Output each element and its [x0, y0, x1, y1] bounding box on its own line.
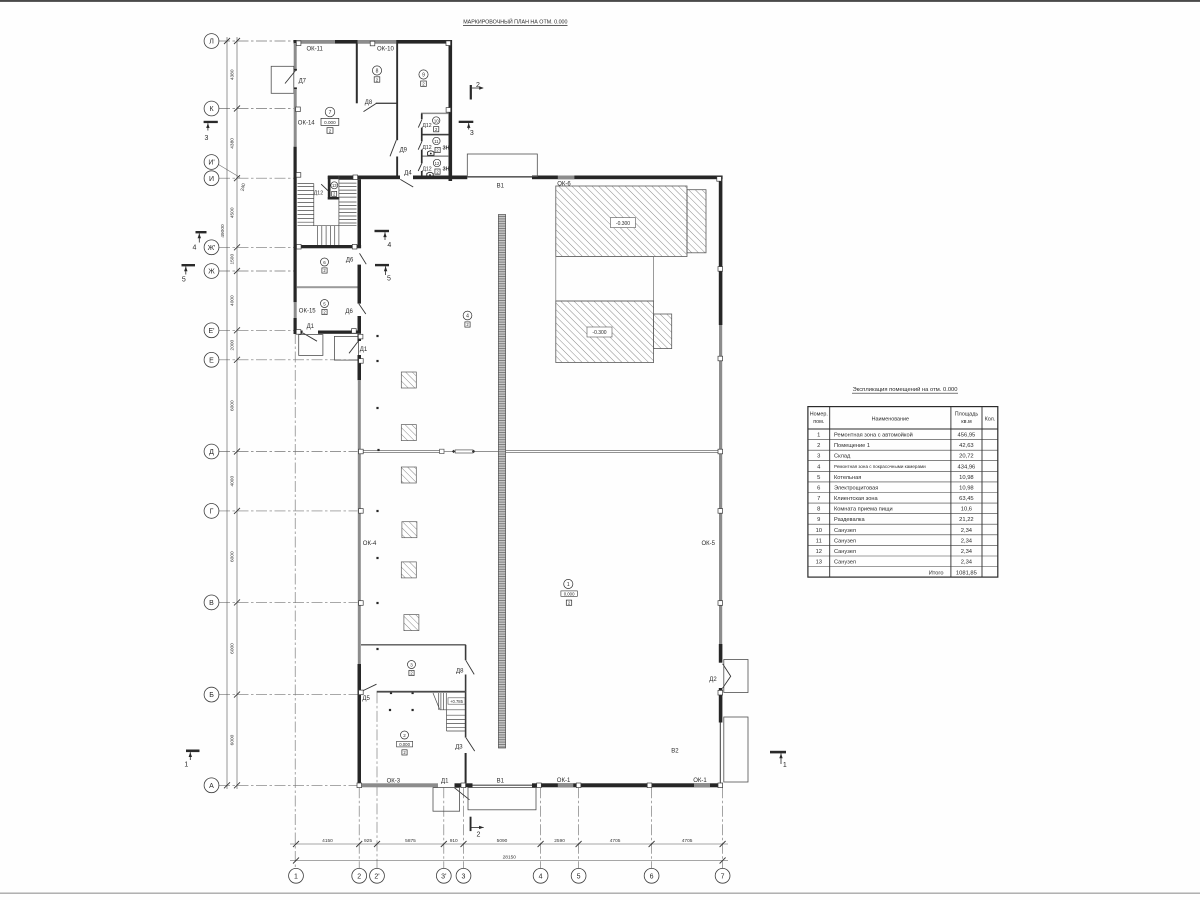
- svg-text:2': 2': [374, 873, 379, 880]
- svg-text:3': 3': [441, 873, 446, 880]
- svg-text:7: 7: [721, 873, 725, 880]
- svg-text:11: 11: [816, 538, 822, 544]
- svg-text:ОК-15: ОК-15: [299, 309, 316, 315]
- svg-text:20,72: 20,72: [959, 454, 974, 460]
- svg-text:6000: 6000: [230, 400, 236, 411]
- svg-text:4: 4: [387, 242, 391, 249]
- svg-text:6: 6: [650, 873, 654, 880]
- svg-text:Д1: Д1: [307, 324, 315, 330]
- svg-text:-0.300: -0.300: [616, 221, 630, 227]
- svg-text:Склад: Склад: [834, 454, 851, 460]
- svg-text:2: 2: [477, 832, 481, 839]
- svg-text:Б: Б: [209, 692, 214, 699]
- svg-text:В1: В1: [497, 184, 505, 190]
- svg-text:4000: 4000: [230, 295, 236, 306]
- svg-text:Санузел: Санузел: [834, 549, 856, 555]
- svg-text:2000: 2000: [230, 339, 236, 350]
- svg-text:6000: 6000: [230, 551, 236, 562]
- svg-text:Ремонтная зона с покрасочными: Ремонтная зона с покрасочными камерами: [834, 464, 926, 469]
- svg-text:910: 910: [450, 838, 458, 844]
- svg-text:2,34: 2,34: [961, 538, 973, 544]
- svg-text:Д1: Д1: [441, 779, 449, 785]
- svg-text:Площадь: Площадь: [955, 412, 979, 418]
- svg-text:Д6: Д6: [345, 309, 353, 315]
- svg-text:Д4: Д4: [404, 171, 412, 177]
- svg-text:Е': Е': [208, 328, 214, 335]
- svg-text:5875: 5875: [405, 838, 416, 844]
- svg-text:3: 3: [462, 873, 466, 880]
- svg-text:Кол.: Кол.: [985, 417, 996, 423]
- svg-text:1: 1: [783, 762, 787, 769]
- svg-text:1: 1: [567, 582, 570, 588]
- svg-text:ОК-5: ОК-5: [702, 541, 716, 547]
- svg-text:10,6: 10,6: [961, 507, 972, 513]
- svg-text:Санузел: Санузел: [834, 538, 856, 544]
- svg-text:4380: 4380: [230, 138, 236, 149]
- svg-text:Электрощитовая: Электрощитовая: [834, 486, 878, 492]
- svg-text:И': И': [208, 160, 214, 167]
- svg-text:5: 5: [577, 873, 581, 880]
- svg-text:Санузел: Санузел: [834, 560, 856, 566]
- svg-text:6000: 6000: [230, 643, 236, 654]
- svg-text:В2: В2: [671, 749, 679, 755]
- svg-text:13: 13: [332, 183, 337, 188]
- svg-text:В1: В1: [497, 779, 505, 785]
- svg-text:10: 10: [816, 528, 822, 534]
- svg-text:Санузел: Санузел: [834, 528, 856, 534]
- svg-text:А: А: [209, 783, 214, 790]
- svg-text:Номер.: Номер.: [810, 412, 828, 418]
- svg-text:+0.785: +0.785: [450, 699, 464, 704]
- svg-text:ОК-4: ОК-4: [363, 541, 377, 547]
- svg-text:кв.м: кв.м: [961, 419, 972, 425]
- svg-text:4: 4: [466, 314, 469, 320]
- svg-text:2: 2: [476, 82, 480, 89]
- svg-text:0.000: 0.000: [564, 591, 575, 596]
- svg-text:Д12: Д12: [422, 145, 431, 151]
- svg-text:Раздевалка: Раздевалка: [834, 517, 865, 523]
- svg-text:Ремонтная зона с автомойкой: Ремонтная зона с автомойкой: [834, 432, 913, 439]
- svg-text:Помещение 1: Помещение 1: [834, 443, 870, 449]
- svg-text:6000: 6000: [230, 734, 236, 745]
- svg-text:11: 11: [434, 139, 439, 144]
- svg-text:4380: 4380: [230, 69, 236, 80]
- svg-text:10,98: 10,98: [959, 475, 974, 481]
- svg-text:2: 2: [357, 873, 361, 880]
- svg-text:Д8: Д8: [456, 668, 464, 674]
- svg-text:1500: 1500: [230, 254, 236, 265]
- svg-text:Д3: Д3: [455, 745, 463, 751]
- svg-text:ЗН: ЗН: [443, 167, 450, 173]
- svg-text:7: 7: [817, 496, 820, 502]
- svg-text:Д7: Д7: [299, 79, 307, 85]
- svg-text:456,95: 456,95: [958, 433, 976, 439]
- svg-text:3: 3: [205, 135, 209, 142]
- svg-text:2: 2: [817, 443, 820, 449]
- svg-text:0.000: 0.000: [324, 120, 336, 125]
- svg-text:13: 13: [816, 560, 822, 566]
- svg-text:Д5: Д5: [362, 696, 370, 702]
- svg-text:5: 5: [817, 475, 820, 481]
- svg-text:925: 925: [364, 838, 372, 844]
- svg-text:Котельная: Котельная: [834, 475, 861, 481]
- svg-text:ОК-1: ОК-1: [557, 778, 571, 784]
- svg-text:ОК-10: ОК-10: [377, 46, 394, 52]
- svg-text:2,34: 2,34: [961, 560, 973, 566]
- svg-text:ОК-14: ОК-14: [298, 120, 315, 126]
- svg-text:2,34: 2,34: [961, 528, 973, 534]
- svg-text:2590: 2590: [554, 838, 565, 844]
- svg-text:Ж: Ж: [208, 269, 215, 276]
- svg-text:1: 1: [294, 873, 298, 880]
- svg-text:9: 9: [817, 517, 820, 523]
- svg-text:10: 10: [434, 118, 439, 123]
- svg-text:0.000: 0.000: [399, 742, 410, 747]
- svg-text:12: 12: [435, 161, 440, 166]
- svg-text:4: 4: [193, 245, 197, 252]
- svg-text:Итого: Итого: [929, 570, 944, 576]
- svg-text:1: 1: [184, 762, 188, 769]
- svg-text:Д9: Д9: [400, 148, 408, 154]
- svg-text:8: 8: [817, 507, 820, 513]
- svg-text:Клиентская зона: Клиентская зона: [834, 496, 878, 502]
- svg-text:Наименование: Наименование: [872, 417, 909, 423]
- svg-text:5: 5: [182, 277, 186, 284]
- svg-text:4500: 4500: [230, 207, 236, 218]
- svg-text:Л: Л: [209, 39, 214, 46]
- svg-text:ОК-1: ОК-1: [693, 778, 707, 784]
- svg-text:Д1: Д1: [360, 347, 368, 353]
- svg-text:3: 3: [470, 130, 474, 137]
- svg-text:9: 9: [422, 73, 425, 79]
- svg-text:Комната приема пищи: Комната приема пищи: [834, 507, 893, 513]
- svg-text:4705: 4705: [682, 838, 693, 844]
- svg-text:ОК-11: ОК-11: [307, 46, 324, 52]
- svg-text:4150: 4150: [322, 838, 333, 844]
- svg-text:1081,85: 1081,85: [956, 570, 977, 576]
- svg-text:Д12: Д12: [422, 123, 431, 129]
- svg-text:Д6: Д6: [346, 258, 354, 264]
- svg-text:Экспликация помещений на отм.: Экспликация помещений на отм. 0.000: [853, 386, 959, 393]
- svg-text:12: 12: [816, 549, 822, 555]
- svg-text:МАРКИРОВОЧНЫЙ ПЛАН НА ОТМ. 0.0: МАРКИРОВОЧНЫЙ ПЛАН НА ОТМ. 0.000: [463, 17, 568, 25]
- svg-text:пом.: пом.: [813, 419, 824, 425]
- svg-text:49000: 49000: [220, 224, 226, 238]
- svg-text:В: В: [209, 600, 214, 607]
- svg-text:Г: Г: [210, 509, 214, 516]
- svg-text:Д: Д: [209, 449, 214, 456]
- svg-text:5090: 5090: [497, 838, 508, 844]
- svg-text:6: 6: [817, 486, 820, 492]
- svg-text:28150: 28150: [503, 855, 517, 861]
- svg-text:Е: Е: [209, 357, 214, 364]
- svg-text:ЗН: ЗН: [443, 145, 450, 151]
- svg-text:434,96: 434,96: [958, 464, 976, 470]
- svg-text:1: 1: [817, 433, 820, 439]
- svg-text:-0.300: -0.300: [592, 330, 606, 336]
- svg-text:7: 7: [329, 110, 332, 116]
- svg-text:10,98: 10,98: [959, 486, 974, 492]
- svg-text:И: И: [209, 176, 214, 183]
- svg-text:63,45: 63,45: [959, 496, 974, 502]
- svg-text:4705: 4705: [610, 838, 621, 844]
- svg-text:4: 4: [539, 873, 543, 880]
- svg-text:Ж': Ж': [208, 245, 216, 252]
- svg-text:4000: 4000: [230, 476, 236, 487]
- svg-text:2,34: 2,34: [961, 549, 973, 555]
- svg-text:Д8: Д8: [365, 100, 373, 106]
- svg-text:8: 8: [376, 69, 379, 75]
- svg-text:3: 3: [817, 454, 820, 460]
- svg-text:42,63: 42,63: [959, 443, 974, 449]
- svg-text:ОК-3: ОК-3: [387, 779, 401, 785]
- svg-text:5: 5: [387, 276, 391, 283]
- svg-text:Д12: Д12: [422, 167, 431, 173]
- svg-text:Д12: Д12: [314, 190, 323, 196]
- svg-text:Д2: Д2: [709, 677, 717, 683]
- svg-text:21,22: 21,22: [959, 517, 974, 523]
